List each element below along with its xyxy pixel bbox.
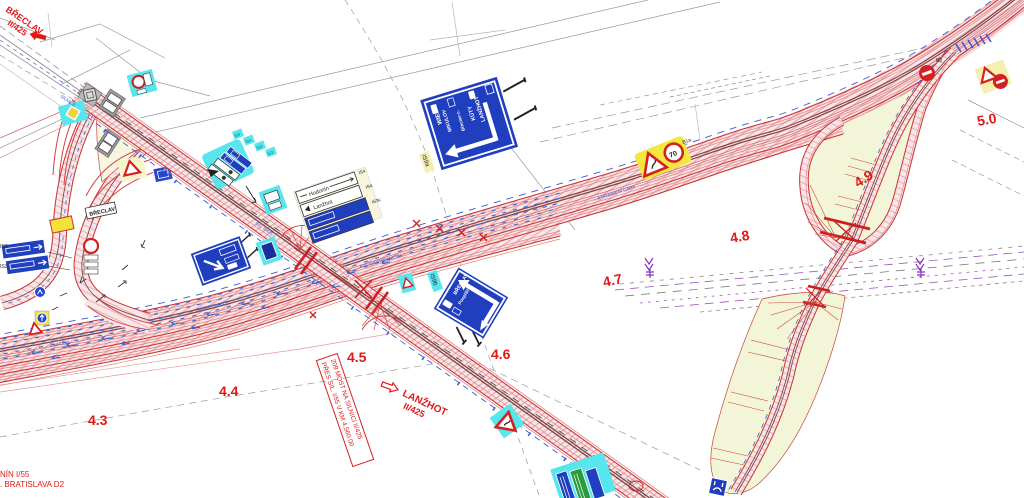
svg-text:4.8: 4.8 [729,227,751,246]
svg-text:4.4: 4.4 [219,383,239,399]
svg-text:B2: B2 [936,58,942,64]
svg-text:IS3: IS3 [0,244,8,250]
svg-text:IS3: IS3 [0,264,8,270]
svg-text:. BRATISLAVA D2: . BRATISLAVA D2 [0,480,65,489]
svg-text:5.0: 5.0 [976,110,998,129]
svg-text:4.3: 4.3 [88,412,108,428]
svg-text:NÍN I/55: NÍN I/55 [0,470,30,479]
svg-text:4.6: 4.6 [491,346,511,362]
svg-text:4.5: 4.5 [347,349,367,365]
